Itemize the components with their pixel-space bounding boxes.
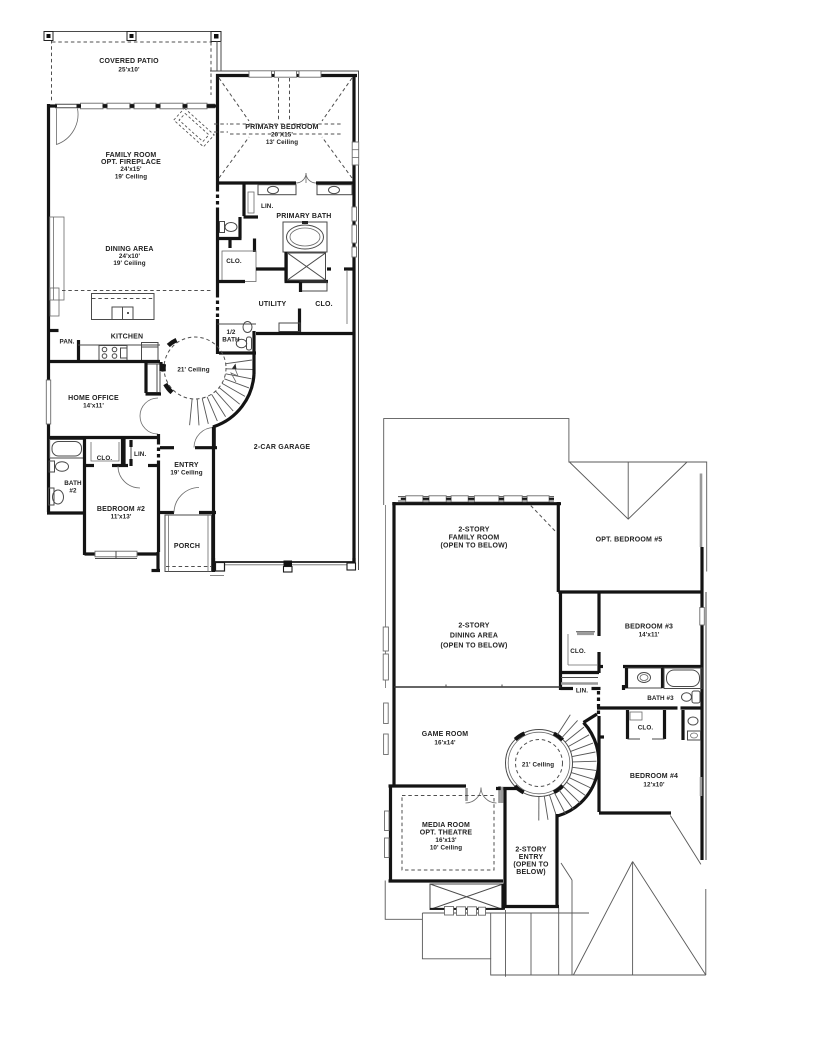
svg-text:(OPEN TO BELOW): (OPEN TO BELOW) — [440, 543, 507, 550]
svg-text:CLO.: CLO. — [570, 648, 586, 655]
svg-text:21' Ceiling: 21' Ceiling — [522, 762, 554, 769]
svg-text:BATH: BATH — [222, 337, 240, 344]
svg-text:2-STORY: 2-STORY — [515, 847, 546, 854]
svg-text:FAMILY ROOM: FAMILY ROOM — [106, 152, 157, 159]
svg-text:BEDROOM #2: BEDROOM #2 — [97, 506, 145, 513]
svg-text:21' Ceiling: 21' Ceiling — [177, 367, 209, 374]
svg-text:LIN.: LIN. — [134, 451, 146, 458]
svg-text:OPT. THEATRE: OPT. THEATRE — [420, 830, 473, 837]
svg-text:CLO.: CLO. — [226, 258, 242, 265]
svg-text:DINING AREA: DINING AREA — [105, 246, 153, 253]
svg-text:CLO.: CLO. — [315, 301, 333, 308]
svg-text:PRIMARY BEDROOM: PRIMARY BEDROOM — [245, 124, 318, 131]
svg-text:PRIMARY BATH: PRIMARY BATH — [276, 213, 331, 220]
svg-text:2-CAR GARAGE: 2-CAR GARAGE — [254, 444, 311, 451]
svg-text:PORCH: PORCH — [174, 543, 200, 550]
svg-text:11'x13': 11'x13' — [111, 514, 132, 521]
svg-text:13' Ceiling: 13' Ceiling — [266, 139, 298, 146]
svg-text:10' Ceiling: 10' Ceiling — [430, 845, 462, 852]
svg-text:BATH #3: BATH #3 — [647, 695, 674, 702]
svg-text:12'x10': 12'x10' — [643, 782, 665, 789]
svg-text:PAN.: PAN. — [60, 339, 75, 346]
svg-text:UTILITY: UTILITY — [259, 301, 287, 308]
svg-text:KITCHEN: KITCHEN — [111, 334, 144, 341]
svg-text:BEDROOM #3: BEDROOM #3 — [625, 624, 673, 631]
svg-text:14'x11': 14'x11' — [639, 632, 660, 639]
svg-text:BELOW): BELOW) — [516, 869, 546, 876]
svg-text:COVERED PATIO: COVERED PATIO — [99, 58, 159, 65]
svg-text:BEDROOM #4: BEDROOM #4 — [630, 773, 678, 780]
svg-text:25'x10': 25'x10' — [118, 67, 140, 74]
svg-text:OPT. BEDROOM #5: OPT. BEDROOM #5 — [596, 537, 663, 544]
svg-text:16'x13': 16'x13' — [435, 837, 457, 844]
svg-text:19' Ceiling: 19' Ceiling — [113, 260, 145, 267]
svg-text:14'x11': 14'x11' — [83, 403, 104, 410]
svg-text:#2: #2 — [69, 488, 77, 495]
svg-text:CLO.: CLO. — [97, 455, 113, 462]
svg-text:(OPEN TO: (OPEN TO — [513, 862, 549, 869]
svg-text:CLO.: CLO. — [638, 725, 654, 732]
svg-text:2-STORY: 2-STORY — [458, 527, 489, 534]
svg-text:20'X15': 20'X15' — [271, 132, 293, 139]
svg-text:16'x14': 16'x14' — [434, 740, 456, 747]
svg-text:DINING AREA: DINING AREA — [450, 633, 498, 640]
svg-text:GAME ROOM: GAME ROOM — [422, 731, 469, 738]
svg-text:24'x15': 24'x15' — [120, 166, 142, 173]
svg-text:HOME OFFICE: HOME OFFICE — [68, 395, 119, 402]
svg-text:FAMILY ROOM: FAMILY ROOM — [449, 535, 500, 542]
svg-text:LIN.: LIN. — [576, 688, 588, 695]
svg-text:(OPEN TO BELOW): (OPEN TO BELOW) — [440, 643, 507, 650]
svg-text:ENTRY: ENTRY — [174, 462, 199, 469]
svg-text:19' Ceiling: 19' Ceiling — [170, 470, 202, 477]
svg-text:1/2: 1/2 — [226, 329, 235, 336]
svg-text:24'x10': 24'x10' — [119, 253, 141, 260]
svg-text:2-STORY: 2-STORY — [458, 623, 489, 630]
svg-text:OPT. FIREPLACE: OPT. FIREPLACE — [101, 159, 161, 166]
svg-text:ENTRY: ENTRY — [519, 854, 544, 861]
svg-text:MEDIA ROOM: MEDIA ROOM — [422, 822, 470, 829]
svg-text:BATH: BATH — [64, 480, 82, 487]
svg-text:19' Ceiling: 19' Ceiling — [115, 174, 147, 181]
svg-text:LIN.: LIN. — [261, 203, 273, 210]
